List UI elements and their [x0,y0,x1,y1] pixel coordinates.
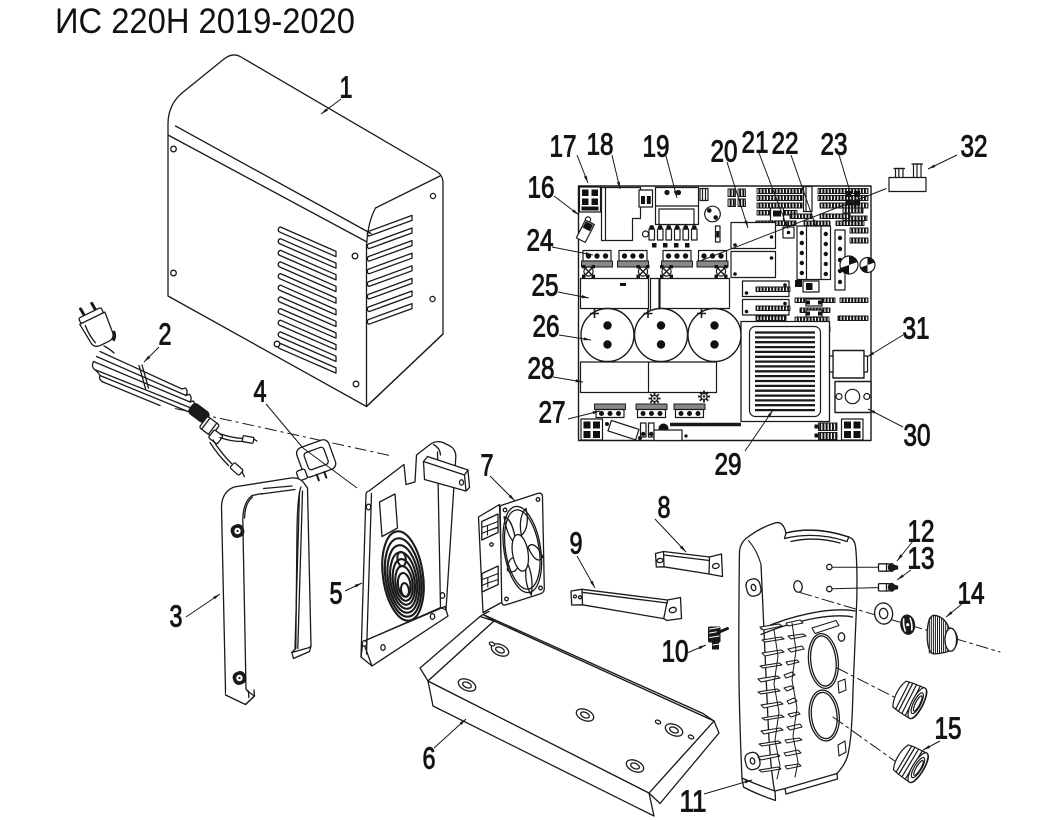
svg-text:16: 16 [528,169,555,204]
svg-text:20: 20 [711,133,738,168]
svg-text:19: 19 [643,128,670,163]
svg-text:18: 18 [587,126,614,161]
svg-text:24: 24 [527,222,554,257]
svg-text:30: 30 [904,417,931,452]
svg-text:27: 27 [539,394,566,429]
svg-text:13: 13 [908,540,935,575]
svg-text:26: 26 [533,308,560,343]
svg-text:14: 14 [958,575,985,610]
svg-text:17: 17 [550,128,577,163]
svg-text:5: 5 [330,575,343,610]
svg-text:22: 22 [772,125,799,160]
svg-text:11: 11 [680,783,707,818]
svg-text:31: 31 [903,310,930,345]
svg-text:15: 15 [935,710,962,745]
svg-text:6: 6 [423,740,436,775]
svg-text:ИС 220Н 2019-2020: ИС 220Н 2019-2020 [55,2,355,41]
svg-text:23: 23 [821,126,848,161]
svg-text:9: 9 [570,525,583,560]
svg-text:3: 3 [170,598,183,633]
svg-text:10: 10 [662,633,689,668]
svg-text:25: 25 [532,267,559,302]
svg-text:2: 2 [159,316,172,351]
svg-text:4: 4 [254,373,267,408]
svg-text:21: 21 [742,124,769,159]
svg-text:29: 29 [715,446,742,481]
svg-text:32: 32 [961,128,988,163]
svg-text:8: 8 [658,489,671,524]
svg-text:28: 28 [528,350,555,385]
svg-text:1: 1 [340,69,353,104]
